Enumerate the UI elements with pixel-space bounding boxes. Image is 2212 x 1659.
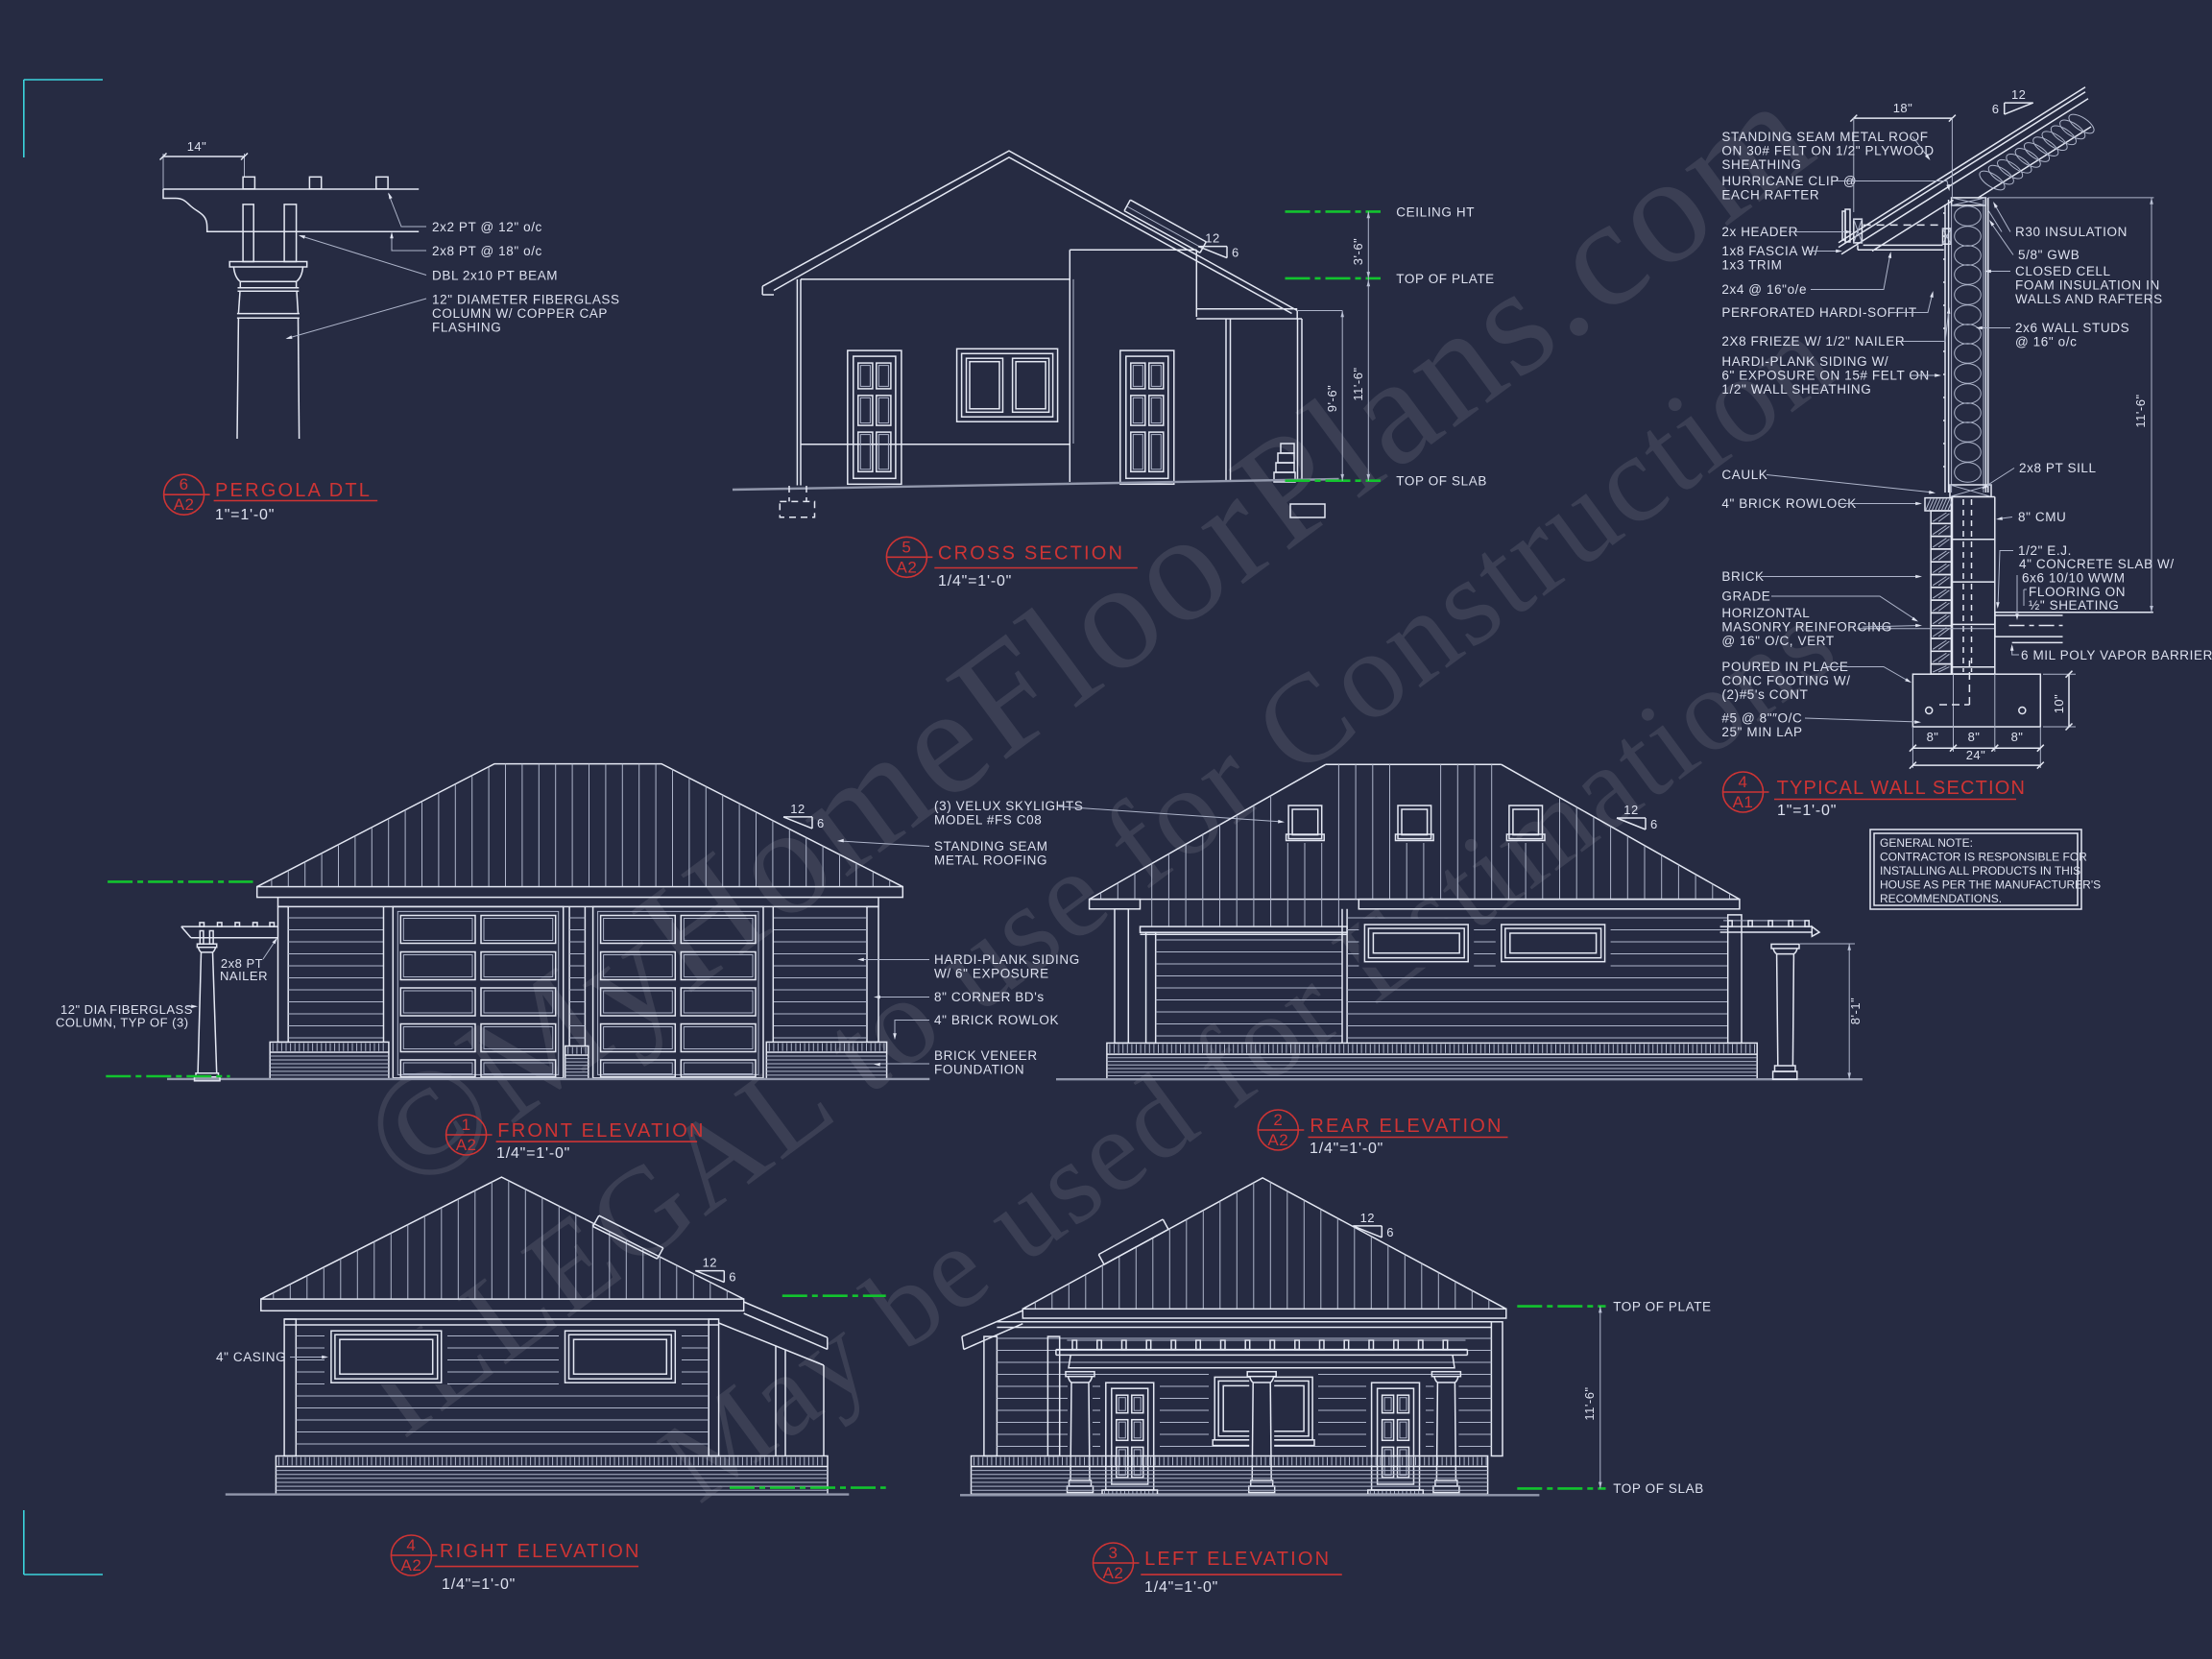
svg-text:3'-6": 3'-6" [1351,238,1365,265]
svg-text:12: 12 [703,1256,717,1270]
svg-text:2x8 PT SILL: 2x8 PT SILL [2019,461,2097,475]
svg-text:GENERAL NOTE:: GENERAL NOTE: [1880,836,1973,850]
svg-text:8": 8" [1968,730,1981,744]
svg-text:METAL ROOFING: METAL ROOFING [934,854,1047,868]
svg-text:MODEL #FS C08: MODEL #FS C08 [934,813,1042,828]
svg-text:4" CONCRETE SLAB W/: 4" CONCRETE SLAB W/ [2019,557,2175,571]
svg-text:6: 6 [1650,817,1658,831]
svg-text:8": 8" [1927,730,1939,744]
svg-text:2x4 @ 16"o/e: 2x4 @ 16"o/e [1721,282,1807,297]
svg-text:6: 6 [180,475,189,493]
svg-text:FOUNDATION: FOUNDATION [934,1063,1024,1077]
svg-text:REAR ELEVATION: REAR ELEVATION [1310,1116,1503,1137]
svg-text:A2: A2 [1103,1564,1124,1582]
svg-text:HARDI-PLANK SIDING W/: HARDI-PLANK SIDING W/ [1721,354,1888,369]
svg-text:1"=1'-0": 1"=1'-0" [1777,803,1837,819]
svg-text:6x6 10/10 WWM: 6x6 10/10 WWM [2022,571,2126,586]
svg-text:#5 @ 8"″O/C: #5 @ 8"″O/C [1721,711,1802,726]
svg-text:2x6 WALL STUDS: 2x6 WALL STUDS [2015,321,2129,335]
svg-text:A2: A2 [174,495,195,514]
svg-text:STANDING SEAM: STANDING SEAM [934,839,1048,854]
svg-text:1/4"=1'-0": 1/4"=1'-0" [938,573,1012,589]
svg-text:STANDING SEAM METAL ROOF: STANDING SEAM METAL ROOF [1721,130,1928,144]
svg-text:CROSS SECTION: CROSS SECTION [938,542,1124,564]
svg-text:BRICK: BRICK [1721,569,1764,584]
svg-text:R30 INSULATION: R30 INSULATION [2015,225,2128,239]
svg-text:4" CASING: 4" CASING [216,1350,286,1364]
svg-text:1: 1 [462,1116,471,1134]
svg-text:CONTRACTOR IS RESPONSIBLE FOR: CONTRACTOR IS RESPONSIBLE FOR [1880,851,2087,864]
svg-text:11'-6": 11'-6" [1351,367,1365,400]
svg-text:4" BRICK ROWLOCK: 4" BRICK ROWLOCK [1721,496,1856,511]
svg-text:5/8" GWB: 5/8" GWB [2018,248,2080,262]
svg-text:5: 5 [902,538,911,556]
svg-text:14": 14" [187,139,207,154]
svg-text:8" CORNER BD's: 8" CORNER BD's [934,990,1045,1004]
svg-text:9'-6": 9'-6" [1325,385,1339,412]
svg-text:12: 12 [1623,803,1638,817]
svg-text:6: 6 [817,816,825,830]
svg-text:A2: A2 [456,1136,477,1154]
svg-text:6: 6 [1232,246,1239,260]
svg-text:18": 18" [1893,101,1913,115]
svg-text:BRICK VENEER: BRICK VENEER [934,1048,1038,1063]
svg-text:FRONT ELEVATION: FRONT ELEVATION [497,1120,705,1142]
svg-text:6: 6 [1992,102,2000,116]
svg-text:4: 4 [406,1536,416,1554]
svg-text:NAILER: NAILER [220,969,268,983]
svg-text:COLUMN W/ COPPER CAP: COLUMN W/ COPPER CAP [432,306,608,321]
svg-text:12" DIAMETER FIBERGLASS: 12" DIAMETER FIBERGLASS [432,292,620,306]
svg-text:A2: A2 [897,558,918,576]
svg-text:1/4"=1'-0": 1/4"=1'-0" [496,1145,570,1162]
svg-text:GRADE: GRADE [1721,589,1770,604]
svg-text:HORIZONTAL: HORIZONTAL [1721,606,1810,620]
svg-text:6: 6 [1386,1225,1394,1239]
svg-text:1/4"=1'-0": 1/4"=1'-0" [442,1576,516,1593]
svg-text:1/4"=1'-0": 1/4"=1'-0" [1310,1141,1383,1157]
svg-text:ON 30# FELT ON 1/2" PLYWOOD: ON 30# FELT ON 1/2" PLYWOOD [1721,144,1934,158]
svg-text:A2: A2 [401,1556,422,1575]
svg-text:HARDI-PLANK SIDING: HARDI-PLANK SIDING [934,952,1080,967]
svg-text:1x3 TRIM: 1x3 TRIM [1721,258,1782,273]
svg-text:4: 4 [1739,773,1748,791]
svg-text:6 MIL POLY VAPOR BARRIER: 6 MIL POLY VAPOR BARRIER [2021,648,2212,662]
svg-text:A2: A2 [1267,1131,1288,1149]
svg-text:8": 8" [2011,730,2024,744]
svg-text:PERFORATED HARDI-SOFFIT: PERFORATED HARDI-SOFFIT [1721,305,1916,320]
svg-text:1/2" WALL SHEATHING: 1/2" WALL SHEATHING [1721,382,1871,397]
svg-text:1/2" E.J.: 1/2" E.J. [2018,543,2072,558]
svg-text:10": 10" [2052,694,2066,714]
svg-text:RIGHT ELEVATION: RIGHT ELEVATION [440,1541,641,1562]
svg-text:TOP OF SLAB: TOP OF SLAB [1396,474,1487,489]
svg-text:(3) VELUX SKYLIGHTS: (3) VELUX SKYLIGHTS [934,799,1083,813]
svg-text:WALLS AND RAFTERS: WALLS AND RAFTERS [2015,292,2163,306]
svg-text:FOAM INSULATION IN: FOAM INSULATION IN [2015,278,2160,293]
svg-text:2X8 FRIEZE W/ 1/2" NAILER: 2X8 FRIEZE W/ 1/2" NAILER [1721,334,1905,349]
svg-text:HOUSE AS PER THE MANUFACTURER': HOUSE AS PER THE MANUFACTURER'S [1880,878,2101,892]
svg-text:INSTALLING ALL PRODUCTS IN THI: INSTALLING ALL PRODUCTS IN THIS [1880,864,2080,878]
svg-text:8" CMU: 8" CMU [2018,510,2066,524]
svg-text:FLOORING ON: FLOORING ON [2029,585,2126,599]
svg-text:(2)#5's CONT: (2)#5's CONT [1721,687,1808,702]
svg-text:4" BRICK ROWLOK: 4" BRICK ROWLOK [934,1013,1059,1027]
svg-text:2: 2 [1273,1111,1283,1129]
svg-text:12: 12 [1360,1211,1375,1225]
svg-text:CLOSED CELL: CLOSED CELL [2015,264,2111,278]
svg-text:EACH RAFTER: EACH RAFTER [1721,188,1819,203]
svg-text:24": 24" [1966,748,1986,762]
svg-text:@ 16" O/C, VERT: @ 16" O/C, VERT [1721,634,1834,648]
svg-text:1/4"=1'-0": 1/4"=1'-0" [1144,1579,1218,1596]
svg-text:8'-1": 8'-1" [1848,998,1863,1024]
svg-text:2x8 PT @ 18" o/c: 2x8 PT @ 18" o/c [432,244,542,258]
svg-text:6" EXPOSURE ON 15# FELT ON: 6" EXPOSURE ON 15# FELT ON [1721,369,1929,383]
svg-text:TOP OF SLAB: TOP OF SLAB [1613,1481,1704,1496]
svg-text:COLUMN, TYP OF (3): COLUMN, TYP OF (3) [56,1016,189,1030]
svg-text:@ 16" o/c: @ 16" o/c [2015,335,2077,349]
svg-text:25" MIN LAP: 25" MIN LAP [1721,725,1802,739]
svg-text:2x HEADER: 2x HEADER [1721,225,1798,239]
svg-text:TOP OF PLATE: TOP OF PLATE [1613,1299,1711,1313]
svg-text:CEILING HT: CEILING HT [1396,204,1475,219]
svg-text:1"=1'-0": 1"=1'-0" [215,507,275,523]
svg-text:CAULK: CAULK [1721,468,1767,482]
svg-text:3: 3 [1109,1544,1118,1562]
svg-text:12: 12 [1205,231,1219,246]
svg-text:FLASHING: FLASHING [432,321,501,335]
svg-text:½" SHEATING: ½" SHEATING [2029,598,2119,613]
svg-text:11'-6": 11'-6" [2133,394,2148,427]
svg-text:W/ 6" EXPOSURE: W/ 6" EXPOSURE [934,967,1049,981]
svg-text:RECOMMENDATIONS.: RECOMMENDATIONS. [1880,892,2002,905]
svg-text:12: 12 [790,802,805,816]
svg-text:TYPICAL WALL SECTION: TYPICAL WALL SECTION [1777,778,2027,799]
svg-text:TOP OF PLATE: TOP OF PLATE [1396,272,1494,286]
svg-text:LEFT ELEVATION: LEFT ELEVATION [1144,1549,1331,1570]
svg-text:CONC FOOTING W/: CONC FOOTING W/ [1721,674,1850,688]
svg-text:SHEATHING: SHEATHING [1721,157,1801,172]
svg-text:1x8 FASCIA W/: 1x8 FASCIA W/ [1721,244,1818,258]
svg-text:2x2 PT @ 12" o/c: 2x2 PT @ 12" o/c [432,220,542,234]
svg-text:12: 12 [2011,87,2026,102]
svg-text:A1: A1 [1733,793,1754,811]
svg-text:6: 6 [729,1270,736,1285]
svg-text:PERGOLA DTL: PERGOLA DTL [215,480,372,501]
svg-text:DBL 2x10 PT BEAM: DBL 2x10 PT BEAM [432,268,558,282]
svg-text:11'-6": 11'-6" [1582,1386,1597,1420]
